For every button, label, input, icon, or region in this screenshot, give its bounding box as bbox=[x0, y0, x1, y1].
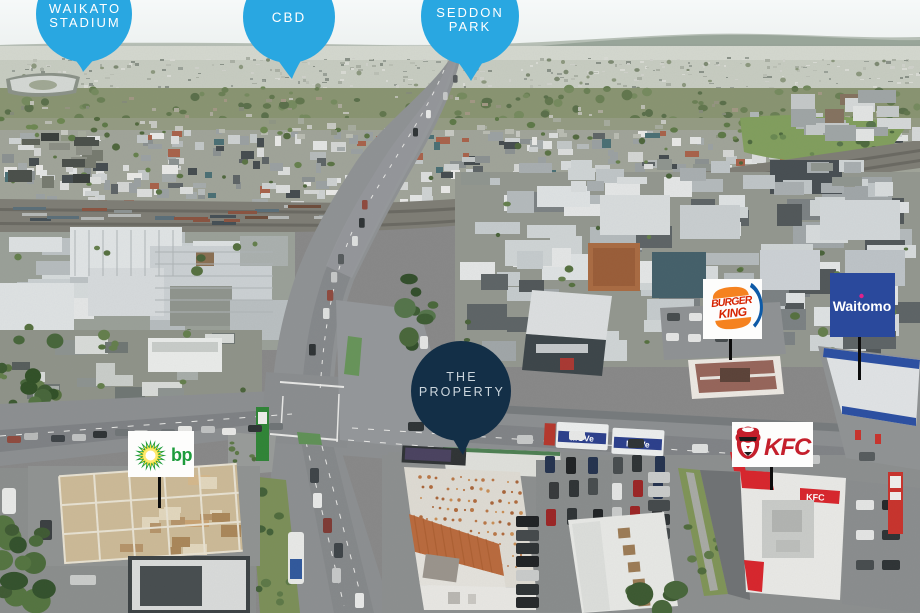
svg-text:THE: THE bbox=[446, 370, 478, 384]
svg-text:KFC: KFC bbox=[764, 434, 812, 461]
svg-text:PROPERTY: PROPERTY bbox=[419, 385, 505, 399]
svg-text:WAIKATO: WAIKATO bbox=[49, 1, 121, 16]
svg-text:CBD: CBD bbox=[272, 10, 307, 25]
svg-text:SEDDON: SEDDON bbox=[436, 5, 504, 20]
svg-text:PARK: PARK bbox=[449, 19, 491, 34]
svg-text:Waitomo: Waitomo bbox=[833, 298, 892, 314]
svg-text:KING: KING bbox=[718, 305, 747, 322]
svg-text:STADIUM: STADIUM bbox=[49, 15, 121, 30]
svg-text:bp: bp bbox=[171, 445, 192, 465]
